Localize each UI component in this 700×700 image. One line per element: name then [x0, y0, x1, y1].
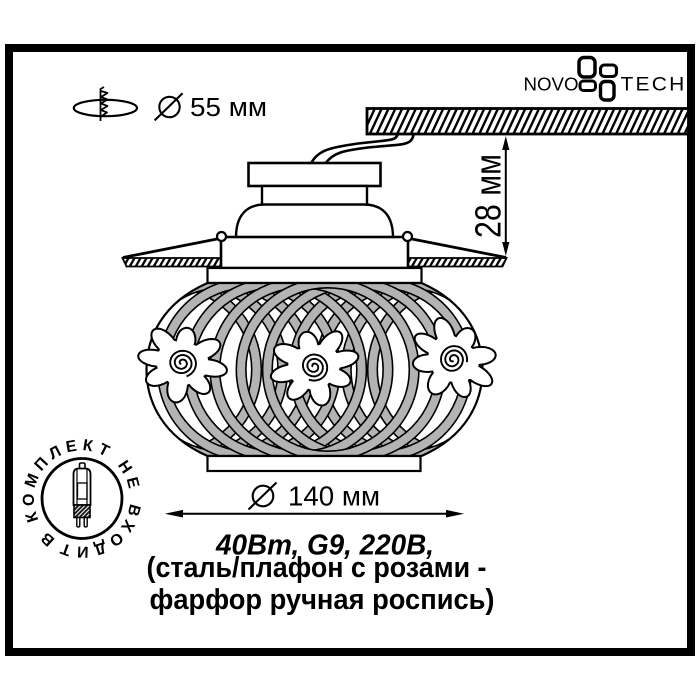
svg-text:28 мм: 28 мм — [468, 154, 509, 238]
svg-text:NOVO: NOVO — [524, 74, 579, 95]
svg-text:55 мм: 55 мм — [190, 94, 267, 122]
svg-text:140 мм: 140 мм — [288, 481, 380, 512]
svg-text:(сталь/плафон с розами -: (сталь/плафон с розами - — [147, 552, 487, 584]
svg-text:TECH: TECH — [621, 75, 687, 96]
svg-text:фарфор ручная роспись): фарфор ручная роспись) — [150, 584, 495, 616]
